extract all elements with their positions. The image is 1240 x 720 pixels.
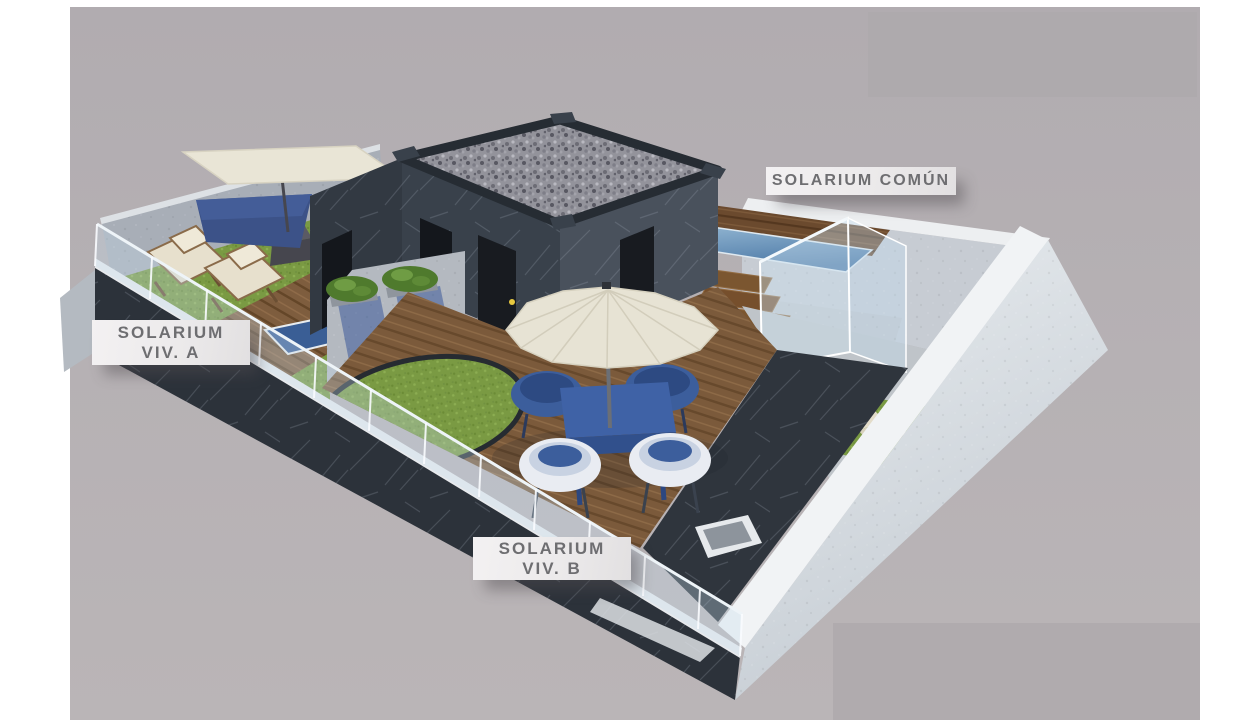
- background-patch-bottom-right: [833, 623, 1200, 720]
- wall-lamp: [509, 299, 515, 305]
- parasol-finial: [602, 282, 611, 289]
- rooftop-render-page: SOLARIUM COMÚN SOLARIUM VIV. A SOLARIUM …: [0, 0, 1240, 720]
- label-solarium-viv-b: SOLARIUM VIV. B: [473, 537, 631, 580]
- hammock-sail: [196, 194, 312, 248]
- label-line-1: SOLARIUM: [118, 323, 225, 343]
- label-text: SOLARIUM COMÚN: [772, 167, 950, 195]
- background-patch-top-right: [868, 12, 1197, 97]
- label-line-2: VIV. A: [142, 343, 201, 363]
- label-line-2: VIV. B: [522, 559, 582, 579]
- label-line-1: SOLARIUM: [499, 539, 606, 559]
- label-solarium-comun: SOLARIUM COMÚN: [766, 167, 956, 195]
- label-solarium-viv-a: SOLARIUM VIV. A: [92, 320, 250, 365]
